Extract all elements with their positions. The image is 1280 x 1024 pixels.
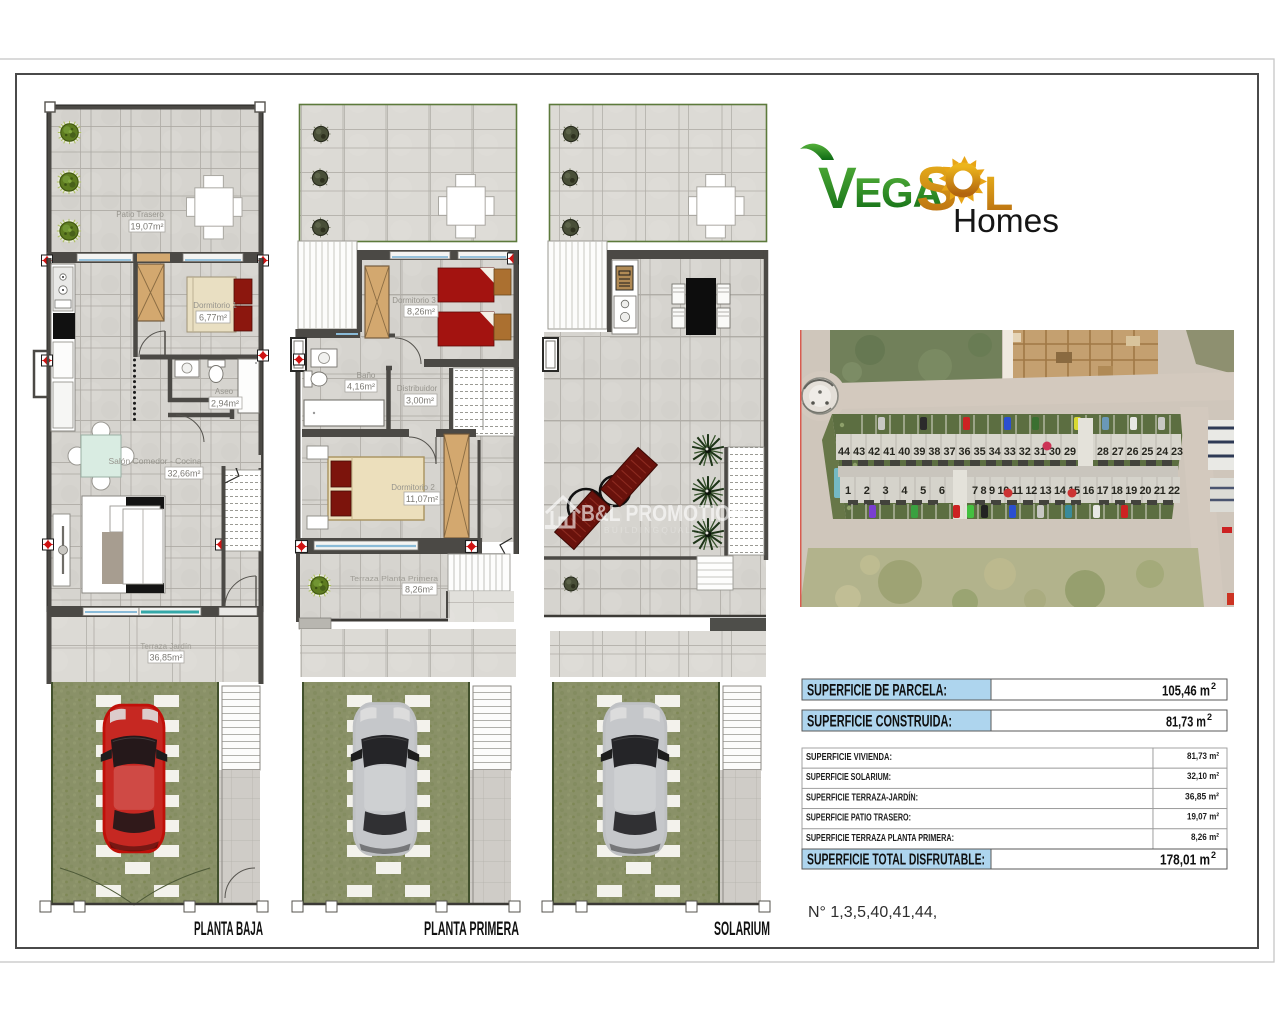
svg-text:PLANTA PRIMERA: PLANTA PRIMERA xyxy=(424,919,519,940)
svg-text:SUPERFICIE DE PARCELA:: SUPERFICIE DE PARCELA: xyxy=(807,682,947,700)
svg-text:81,73 m²: 81,73 m² xyxy=(1187,751,1219,762)
svg-text:SUPERFICIE SOLARIUM:: SUPERFICIE SOLARIUM: xyxy=(806,771,891,783)
svg-text:Distribuidor: Distribuidor xyxy=(397,384,438,393)
svg-text:SOLARIUM: SOLARIUM xyxy=(714,919,770,940)
svg-text:19,07m²: 19,07m² xyxy=(130,222,163,232)
svg-text:2: 2 xyxy=(1211,850,1216,860)
svg-text:19,07 m²: 19,07 m² xyxy=(1187,812,1219,823)
svg-text:SUPERFICIE TOTAL DISFRUTABLE:: SUPERFICIE TOTAL DISFRUTABLE: xyxy=(807,852,985,869)
svg-text:44 43 42 41 40 39 38 37 36 35: 44 43 42 41 40 39 38 37 36 35 34 33 32 3… xyxy=(838,446,1076,458)
svg-text:Salón Comedor - Cocina: Salón Comedor - Cocina xyxy=(108,456,201,466)
svg-text:8,26 m²: 8,26 m² xyxy=(1191,832,1219,843)
svg-text:32,10 m²: 32,10 m² xyxy=(1187,771,1219,782)
svg-text:2: 2 xyxy=(1207,712,1212,722)
svg-text:36,85m²: 36,85m² xyxy=(149,653,182,663)
svg-text:SUPERFICIE VIVIENDA:: SUPERFICIE VIVIENDA: xyxy=(806,751,892,763)
svg-text:PLANTA BAJA: PLANTA BAJA xyxy=(194,919,263,940)
svg-text:105,46 m: 105,46 m xyxy=(1162,683,1210,700)
svg-text:32,66m²: 32,66m² xyxy=(167,469,200,479)
svg-text:B&L PROMOTION: B&L PROMOTION xyxy=(581,500,744,526)
svg-text:8,26m²: 8,26m² xyxy=(405,585,433,595)
svg-text:B U I L D I N G Q U A L I T Y: B U I L D I N G Q U A L I T Y xyxy=(604,526,710,535)
svg-text:8,26m²: 8,26m² xyxy=(407,307,435,317)
svg-text:2: 2 xyxy=(1211,681,1216,691)
svg-text:Baño: Baño xyxy=(357,371,376,380)
svg-text:Dormitorio 2: Dormitorio 2 xyxy=(391,483,435,492)
svg-text:178,01 m: 178,01 m xyxy=(1160,852,1210,869)
svg-text:SUPERFICIE CONSTRUIDA:: SUPERFICIE CONSTRUIDA: xyxy=(807,713,952,731)
svg-text:V: V xyxy=(818,156,857,221)
svg-text:Dormitorio 1: Dormitorio 1 xyxy=(193,301,237,310)
svg-text:Terraza Planta Primera: Terraza Planta Primera xyxy=(350,574,439,583)
svg-text:SUPERFICIE TERRAZA-JARDÍN:: SUPERFICIE TERRAZA-JARDÍN: xyxy=(806,790,918,803)
svg-text:SUPERFICIE TERRAZA PLANTA PRIM: SUPERFICIE TERRAZA PLANTA PRIMERA: xyxy=(806,832,954,844)
svg-text:Dormitorio 3: Dormitorio 3 xyxy=(392,296,436,305)
svg-text:Homes: Homes xyxy=(953,202,1059,239)
svg-text:2,94m²: 2,94m² xyxy=(211,399,239,409)
svg-text:N° 1,3,5,40,41,44,: N° 1,3,5,40,41,44, xyxy=(808,904,937,921)
svg-text:28 27 26 25 24 23: 28 27 26 25 24 23 xyxy=(1097,446,1183,458)
svg-text:SUPERFICIE PATIO TRASERO:: SUPERFICIE PATIO TRASERO: xyxy=(806,812,911,824)
svg-text:Patio Trasero: Patio Trasero xyxy=(116,210,164,219)
svg-text:11,07m²: 11,07m² xyxy=(406,494,438,504)
svg-text:Terraza Jardín: Terraza Jardín xyxy=(140,642,191,651)
svg-text:Aseo: Aseo xyxy=(215,387,234,396)
svg-text:3,00m²: 3,00m² xyxy=(406,396,434,406)
svg-text:4,16m²: 4,16m² xyxy=(347,382,375,392)
svg-text:6,77m²: 6,77m² xyxy=(199,313,227,323)
svg-text:81,73 m: 81,73 m xyxy=(1166,714,1206,731)
svg-text:36,85 m²: 36,85 m² xyxy=(1185,791,1219,802)
